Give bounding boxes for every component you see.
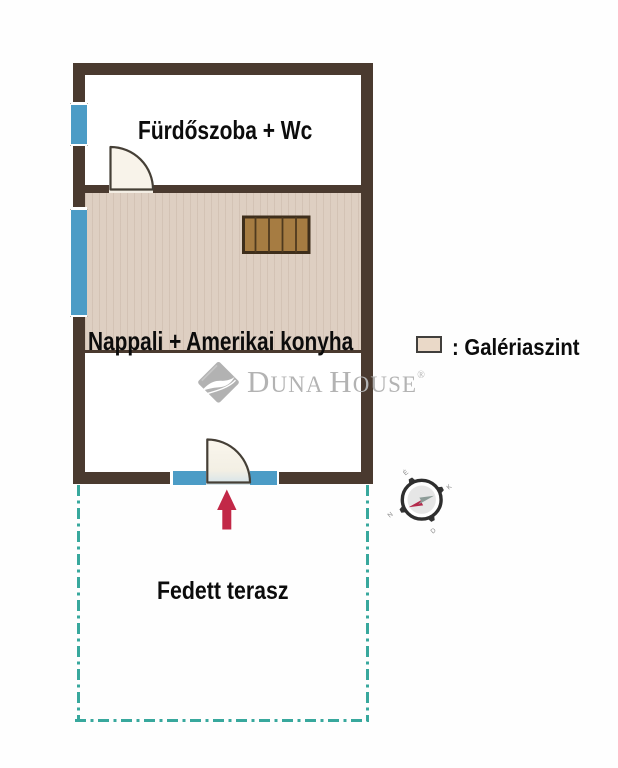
svg-text:N: N xyxy=(387,511,395,520)
svg-text:É: É xyxy=(401,467,411,477)
svg-text:D: D xyxy=(430,527,438,536)
svg-text:K: K xyxy=(446,483,454,492)
